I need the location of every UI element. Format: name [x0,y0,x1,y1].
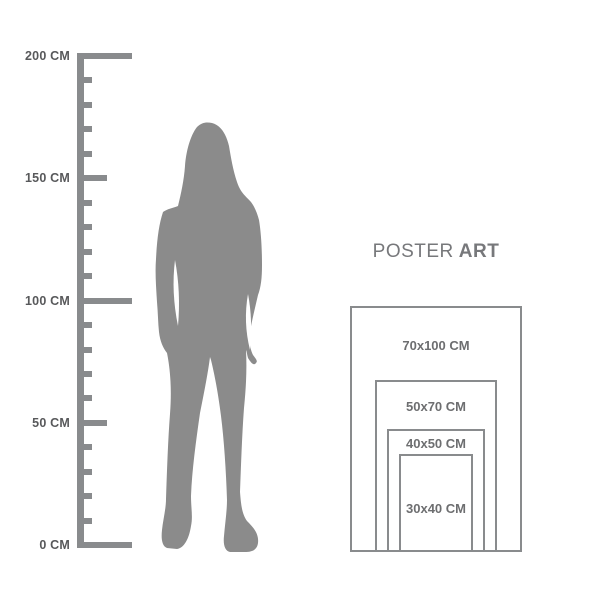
poster-frame-label-30x40: 30x40 CM [366,501,506,517]
poster-size-frames: 70x100 CM50x70 CM40x50 CM30x40 CM [0,0,600,600]
poster-frame-label-40x50: 40x50 CM [366,436,506,452]
poster-size-guide: 200 CM150 CM100 CM50 CM0 CM POSTERART 70… [0,0,600,600]
poster-frame-label-50x70: 50x70 CM [366,399,506,415]
poster-frame-label-70x100: 70x100 CM [366,338,506,354]
